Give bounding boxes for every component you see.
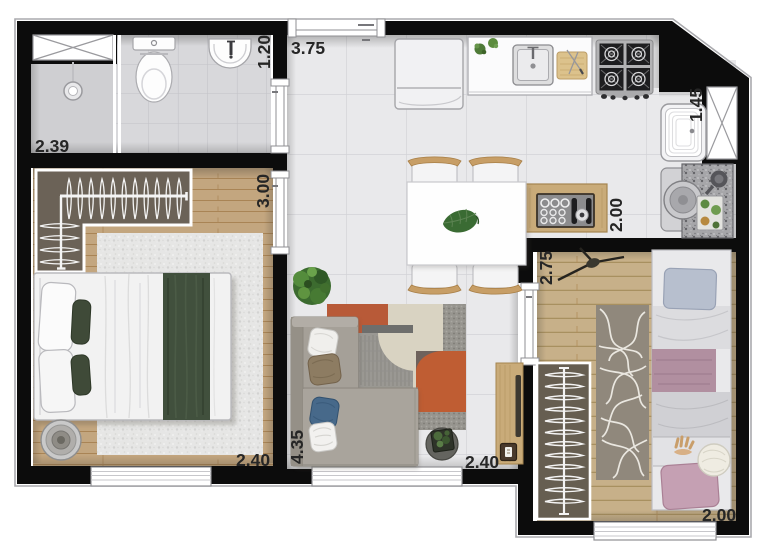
svg-text:2.00: 2.00 <box>702 505 736 525</box>
svg-text:3.00: 3.00 <box>253 174 273 208</box>
svg-text:2.39: 2.39 <box>35 136 69 156</box>
svg-text:2.00: 2.00 <box>606 198 626 232</box>
svg-text:3.75: 3.75 <box>291 38 325 58</box>
svg-text:2.40: 2.40 <box>465 452 499 472</box>
svg-text:1.20: 1.20 <box>254 35 274 69</box>
svg-text:2.40: 2.40 <box>236 450 270 470</box>
svg-text:2.75: 2.75 <box>536 251 556 285</box>
svg-text:1.45: 1.45 <box>686 88 706 122</box>
svg-text:4.35: 4.35 <box>287 430 307 464</box>
